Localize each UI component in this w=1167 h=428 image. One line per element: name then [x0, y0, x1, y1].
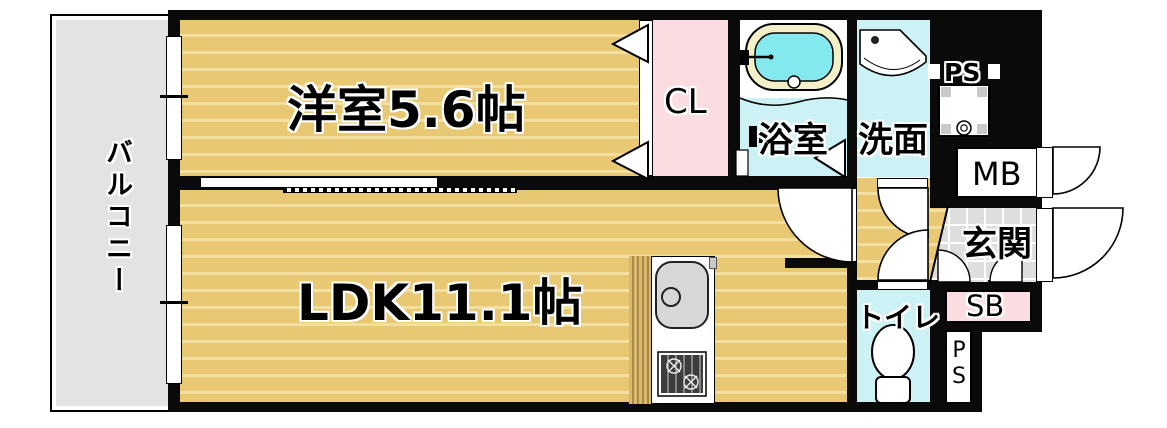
- bathtub-zone: [740, 12, 847, 98]
- pan-corner-1: [941, 87, 951, 97]
- closet-label: CL: [664, 82, 707, 122]
- wall-ps-right: [972, 330, 982, 412]
- entry-door-frame-top: [1036, 147, 1053, 198]
- counter-tab: [709, 257, 717, 269]
- ps-label-tab-left: [928, 64, 940, 79]
- pan-corner-3: [941, 124, 951, 134]
- pipe-space-bottom-label: PS: [948, 338, 970, 390]
- closet-door-band: [639, 20, 653, 176]
- toilet-door-leaf: [877, 281, 928, 290]
- balcony-window-ldk: [166, 225, 182, 384]
- entry-door-frame-bottom: [1036, 208, 1053, 282]
- ldk-door-leaf: [847, 188, 857, 262]
- balcony-label: バルコニー: [97, 138, 136, 298]
- window-tick-2: [160, 301, 188, 304]
- entrance-label: 玄関: [962, 216, 1032, 267]
- pipe-space-top-label: PS: [944, 58, 980, 87]
- wall-bottom: [168, 402, 982, 412]
- toilet-label: トイレ: [856, 296, 940, 336]
- floor-plan: バルコニー 洋室5.6帖 LDK11.1帖 CL 浴室 洗面 PS MB 玄関 …: [0, 0, 1167, 428]
- western-room-label: 洋室5.6帖: [287, 70, 526, 142]
- window-tick-1: [160, 95, 188, 98]
- wall-top: [168, 10, 1040, 20]
- wall-bath-washroom: [847, 10, 857, 178]
- ps-label-tab-right: [988, 64, 1000, 79]
- wall-entry-right: [1032, 282, 1042, 332]
- ldk-label: LDK11.1帖: [297, 263, 582, 335]
- shoe-box-label: SB: [966, 289, 1004, 323]
- meter-box-label: MB: [972, 155, 1022, 193]
- sliding-door-track: [283, 187, 517, 193]
- wall-bath-left: [728, 10, 740, 178]
- balcony-window-bedroom: [166, 36, 182, 160]
- wall-kitchen-stub: [785, 258, 855, 268]
- kitchen-side-panel: [629, 256, 651, 404]
- pan-corner-4: [977, 124, 987, 134]
- kitchen-counter: [651, 256, 715, 404]
- washroom-door-leaf: [877, 178, 928, 188]
- entry-door-swing-bottom: [1053, 208, 1123, 278]
- pan-corner-2: [977, 87, 987, 97]
- entry-door-swing-top: [1053, 147, 1100, 194]
- washroom-label: 洗面: [858, 112, 928, 163]
- bathroom-label: 浴室: [758, 112, 828, 163]
